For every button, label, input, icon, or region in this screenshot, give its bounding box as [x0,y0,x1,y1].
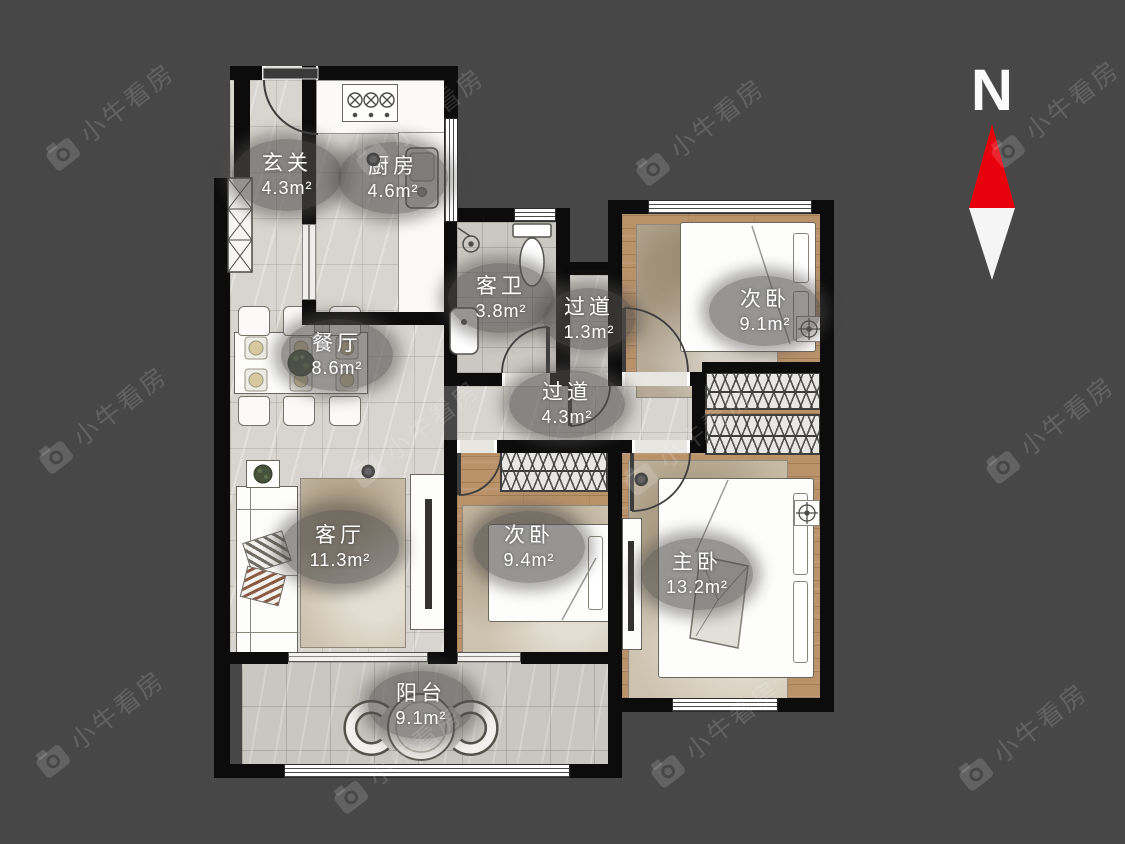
room-label-guodao-main: 过道 4.3m² [509,370,625,438]
room-name: 次卧 [740,287,790,313]
shower-icon [458,228,479,252]
room-label-zhuwo: 主卧 13.2m² [641,538,753,610]
room-label-kewei: 客卫 3.8m² [448,263,554,333]
room-label-ciwo-mid: 次卧 9.4m² [473,511,585,583]
gas-stove-icon [348,93,394,117]
entry-door [263,68,318,134]
compass: N [958,62,1026,290]
room-area: 13.2m² [666,576,728,599]
room-area: 4.3m² [261,177,312,200]
room-label-keting: 客厅 11.3m² [281,510,399,584]
room-name: 客卫 [476,274,526,300]
room-label-canting: 餐厅 8.6m² [281,319,393,391]
bedroom-mid-door [459,453,501,495]
room-name: 餐厅 [312,331,362,357]
room-name: 阳台 [396,681,446,707]
room-name: 过道 [542,380,592,406]
room-area: 9.1m² [395,707,446,730]
north-arrow-icon [958,120,1026,285]
room-name: 次卧 [504,523,554,549]
compass-n-label: N [958,62,1026,120]
room-area: 3.8m² [475,300,526,323]
room-area: 1.3m² [563,321,614,344]
room-name: 过道 [564,295,614,321]
room-name: 客厅 [315,523,365,549]
room-label-chufang: 厨房 4.6m² [338,142,448,214]
room-name: 玄关 [262,151,312,177]
room-label-ciwo-top: 次卧 9.1m² [709,276,821,346]
master-door [632,453,690,511]
room-area: 4.6m² [367,180,418,203]
room-area: 9.1m² [739,313,790,336]
room-label-guodao-small: 过道 1.3m² [543,288,635,350]
room-area: 9.4m² [503,549,554,572]
room-label-yangtai: 阳台 9.1m² [368,671,474,739]
plant-icon [254,465,272,483]
lamp-crosshair-icon [796,318,820,524]
room-area: 8.6m² [311,357,362,380]
room-name: 主卧 [672,550,722,576]
room-area: 4.3m² [541,406,592,429]
bathroom-door [502,327,548,373]
room-area: 11.3m² [310,549,371,572]
room-name: 厨房 [368,154,418,180]
floorplan-canvas: 玄关 4.3m² 厨房 4.6m² 客卫 3.8m² 过道 1.3m² 次卧 9… [0,0,1125,844]
room-label-xuanguan: 玄关 4.3m² [232,139,342,211]
